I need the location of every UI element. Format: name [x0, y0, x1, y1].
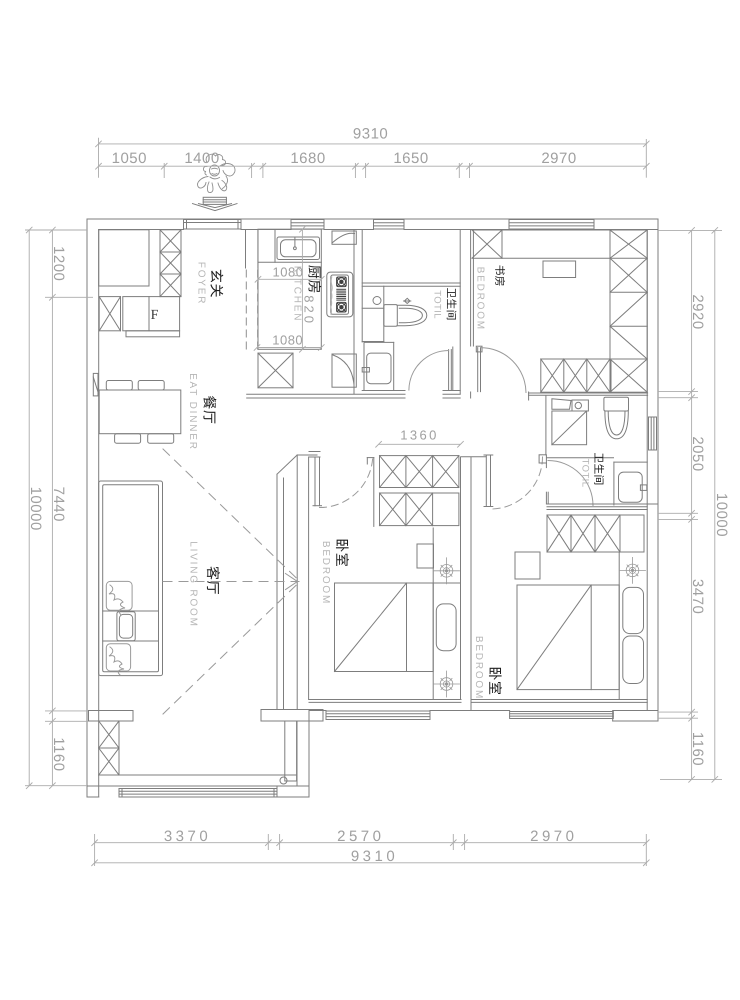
- svg-text:1160: 1160: [689, 732, 706, 766]
- svg-text:玄关: 玄关: [209, 269, 225, 298]
- svg-text:TOTIL: TOTIL: [432, 290, 443, 319]
- svg-text:BEDROOM: BEDROOM: [473, 636, 484, 700]
- svg-text:3370: 3370: [164, 828, 211, 845]
- svg-text:BEDROOM: BEDROOM: [475, 267, 486, 331]
- svg-text:LIVING ROOM: LIVING ROOM: [188, 541, 199, 627]
- svg-text:1080: 1080: [272, 333, 303, 348]
- svg-text:1200: 1200: [50, 246, 67, 281]
- svg-text:餐厅: 餐厅: [202, 395, 218, 424]
- svg-text:FOYER: FOYER: [196, 262, 207, 305]
- svg-text:2570: 2570: [337, 828, 384, 845]
- svg-text:2970: 2970: [541, 150, 576, 167]
- svg-text:10000: 10000: [713, 493, 730, 537]
- svg-text:TOTIL: TOTIL: [580, 459, 591, 488]
- svg-text:卫生间: 卫生间: [592, 452, 605, 485]
- svg-text:卧室: 卧室: [487, 666, 503, 695]
- svg-text:9310: 9310: [353, 125, 388, 142]
- svg-text:9310: 9310: [351, 848, 398, 865]
- svg-text:2920: 2920: [689, 294, 706, 329]
- svg-text:客厅: 客厅: [205, 566, 221, 595]
- svg-text:KITCHEN: KITCHEN: [292, 266, 303, 323]
- svg-text:卫生间: 卫生间: [445, 287, 458, 320]
- svg-text:卧室: 卧室: [334, 538, 350, 567]
- svg-text:F: F: [151, 308, 159, 323]
- svg-text:10000: 10000: [27, 487, 44, 531]
- svg-text:BEDROOM: BEDROOM: [320, 541, 331, 605]
- svg-text:1160: 1160: [50, 737, 67, 771]
- svg-text:EAT DINNER: EAT DINNER: [187, 373, 198, 451]
- svg-text:820: 820: [302, 295, 317, 326]
- svg-text:书房: 书房: [493, 265, 506, 287]
- svg-text:2050: 2050: [689, 436, 706, 471]
- svg-text:2970: 2970: [530, 828, 577, 845]
- svg-text:7440: 7440: [50, 487, 67, 522]
- svg-text:1680: 1680: [290, 150, 325, 167]
- svg-text:1400: 1400: [184, 150, 219, 167]
- svg-text:1360: 1360: [400, 428, 439, 443]
- svg-text:厨房: 厨房: [307, 265, 323, 294]
- svg-text:3470: 3470: [689, 579, 706, 614]
- svg-text:1650: 1650: [393, 150, 428, 167]
- svg-text:1050: 1050: [112, 150, 147, 167]
